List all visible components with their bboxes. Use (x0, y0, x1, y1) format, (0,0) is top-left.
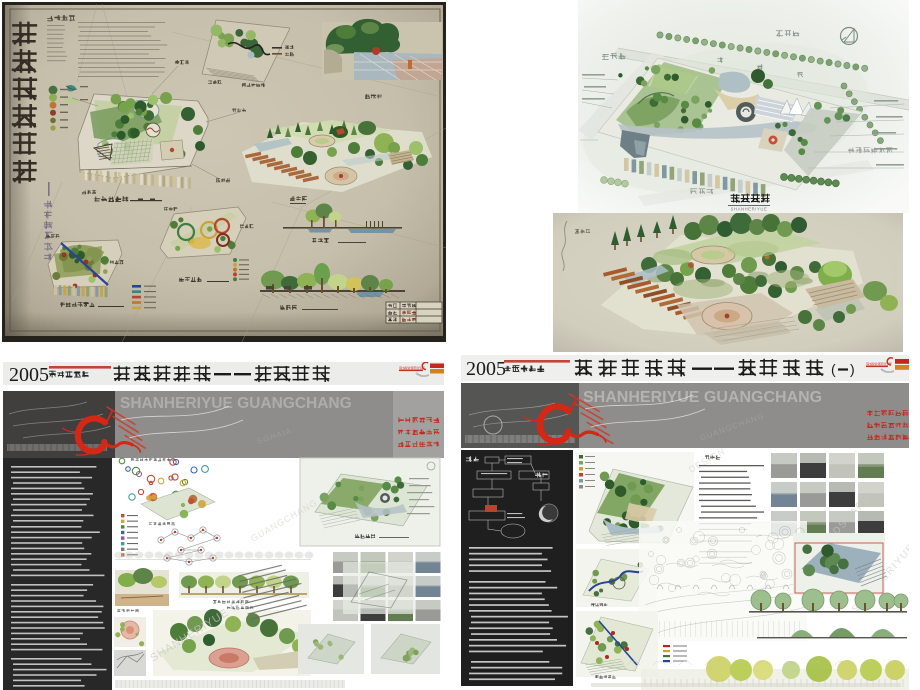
svg-text:): ) (850, 361, 855, 377)
svg-text:(: ( (831, 361, 836, 377)
svg-text:2005: 2005 (9, 364, 49, 386)
svg-text:2005: 2005 (466, 358, 506, 380)
svg-text:SHANHERIYUE GUANGCHANG: SHANHERIYUE GUANGCHANG (120, 395, 352, 412)
svg-text:SHANHERIYUE GUANGCHANG: SHANHERIYUE GUANGCHANG (583, 389, 822, 406)
svg-text:SHANHERIYUE: SHANHERIYUE (731, 207, 768, 212)
